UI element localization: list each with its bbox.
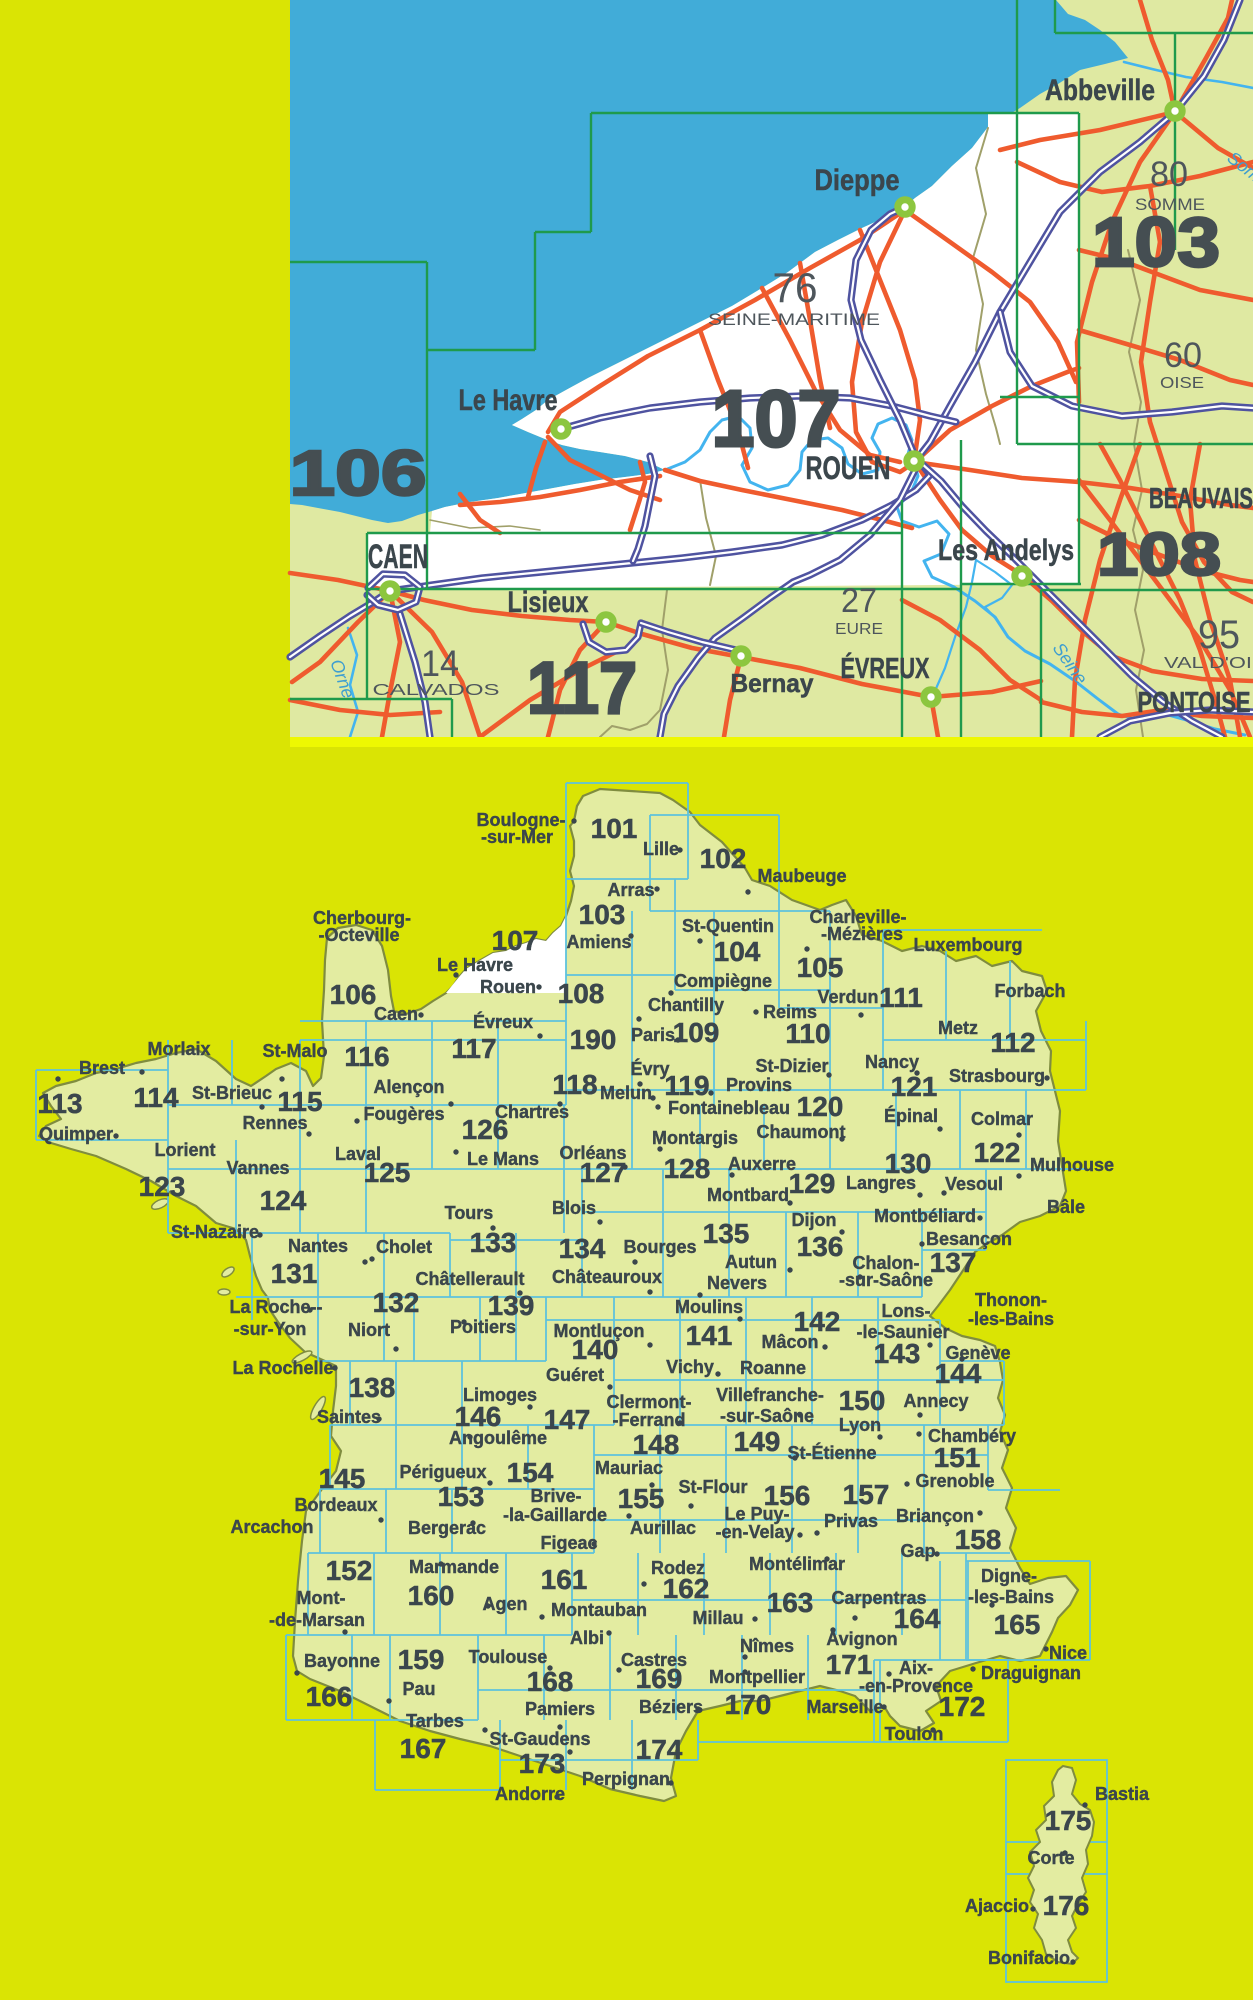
svg-text:Mauriac: Mauriac [595, 1458, 663, 1478]
svg-text:103: 103 [1092, 203, 1220, 281]
svg-text:St-Nazaire: St-Nazaire [171, 1222, 259, 1242]
svg-text:Castres: Castres [621, 1650, 687, 1670]
svg-text:Auxerre: Auxerre [728, 1154, 796, 1174]
svg-text:OISE: OISE [1160, 375, 1204, 392]
svg-text:CALVADOS: CALVADOS [373, 682, 500, 699]
svg-text:Châtellerault: Châtellerault [415, 1269, 524, 1289]
svg-text:174: 174 [636, 1734, 683, 1765]
svg-text:Le Havre: Le Havre [459, 384, 558, 417]
svg-text:Genève: Genève [945, 1343, 1010, 1363]
svg-text:Montauban: Montauban [551, 1600, 647, 1620]
svg-text:Cholet: Cholet [376, 1237, 432, 1257]
svg-text:Nîmes: Nîmes [740, 1636, 794, 1656]
svg-text:Vesoul: Vesoul [945, 1174, 1003, 1194]
svg-text:190: 190 [570, 1024, 617, 1055]
svg-text:Pamiers: Pamiers [525, 1699, 595, 1719]
svg-text:Chantilly: Chantilly [648, 995, 724, 1015]
svg-text:Montbéliard: Montbéliard [874, 1206, 976, 1226]
svg-text:Moulins: Moulins [675, 1297, 743, 1317]
svg-text:102: 102 [700, 843, 747, 874]
svg-text:Colmar: Colmar [971, 1109, 1033, 1129]
svg-text:150: 150 [839, 1385, 886, 1416]
svg-text:116: 116 [344, 1041, 389, 1072]
svg-text:Orléans: Orléans [559, 1143, 626, 1163]
svg-text:131: 131 [271, 1258, 318, 1289]
svg-text:-Octeville: -Octeville [318, 925, 399, 945]
svg-text:106: 106 [330, 979, 377, 1010]
svg-text:134: 134 [559, 1233, 606, 1264]
svg-text:175: 175 [1045, 1805, 1092, 1836]
svg-text:Bonifacio: Bonifacio [988, 1948, 1070, 1968]
svg-text:Gap: Gap [900, 1541, 935, 1561]
svg-text:Brest: Brest [79, 1058, 125, 1078]
svg-text:Montluçon: Montluçon [554, 1321, 645, 1341]
svg-text:Andorre: Andorre [495, 1784, 565, 1804]
svg-text:Rennes: Rennes [242, 1113, 307, 1133]
svg-text:Privas: Privas [824, 1511, 878, 1531]
svg-text:Le Mans: Le Mans [467, 1149, 539, 1169]
svg-text:137: 137 [930, 1247, 977, 1278]
svg-text:Verdun: Verdun [817, 987, 878, 1007]
svg-text:St-Gaudens: St-Gaudens [489, 1729, 590, 1749]
svg-text:Les Andelys: Les Andelys [938, 534, 1074, 567]
svg-text:Poitiers: Poitiers [450, 1317, 516, 1337]
svg-text:Grenoble: Grenoble [915, 1471, 994, 1491]
svg-text:Abbeville: Abbeville [1045, 74, 1155, 107]
svg-text:CAEN: CAEN [368, 538, 428, 576]
svg-text:Vannes: Vannes [226, 1158, 289, 1178]
svg-text:170: 170 [725, 1689, 772, 1720]
svg-text:Draguignan: Draguignan [981, 1663, 1081, 1683]
svg-text:Morlaix: Morlaix [147, 1039, 210, 1059]
svg-text:Fougères: Fougères [363, 1104, 444, 1124]
svg-text:Bâle: Bâle [1047, 1197, 1085, 1217]
svg-text:Montargis: Montargis [652, 1128, 738, 1148]
svg-text:Reims: Reims [763, 1002, 817, 1022]
svg-text:Niort: Niort [348, 1320, 390, 1340]
svg-text:Corte: Corte [1027, 1848, 1074, 1868]
svg-text:117: 117 [527, 648, 637, 729]
svg-text:166: 166 [306, 1681, 353, 1712]
svg-text:Rodez: Rodez [651, 1558, 705, 1578]
svg-text:Avignon: Avignon [826, 1629, 897, 1649]
svg-text:-de-Marsan: -de-Marsan [269, 1610, 365, 1630]
svg-text:-sur-Yon: -sur-Yon [234, 1319, 307, 1339]
svg-text:Aix-: Aix- [899, 1658, 933, 1678]
svg-text:Montélimar: Montélimar [749, 1554, 845, 1574]
svg-text:SEINE-MARITIME: SEINE-MARITIME [708, 310, 880, 329]
svg-text:Albi: Albi [570, 1628, 604, 1648]
svg-text:120: 120 [797, 1091, 844, 1122]
svg-text:Nantes: Nantes [288, 1236, 348, 1256]
svg-text:Strasbourg: Strasbourg [949, 1066, 1045, 1086]
svg-text:-la-Gaillarde: -la-Gaillarde [503, 1505, 607, 1525]
svg-text:148: 148 [633, 1429, 680, 1460]
svg-text:124: 124 [260, 1185, 307, 1216]
svg-text:Maubeuge: Maubeuge [757, 866, 846, 886]
svg-text:Metz: Metz [938, 1018, 978, 1038]
svg-text:La Rochelle: La Rochelle [232, 1358, 333, 1378]
svg-text:-sur-Mer: -sur-Mer [481, 827, 553, 847]
svg-text:Amiens: Amiens [566, 932, 631, 952]
svg-text:135: 135 [703, 1218, 750, 1249]
svg-text:Lyon: Lyon [839, 1415, 881, 1435]
svg-text:Nancy: Nancy [865, 1052, 919, 1072]
svg-text:Bernay: Bernay [731, 668, 815, 698]
svg-text:Lille: Lille [643, 839, 679, 859]
svg-text:154: 154 [507, 1457, 554, 1488]
svg-text:163: 163 [767, 1587, 814, 1618]
svg-text:PONTOISE: PONTOISE [1138, 687, 1251, 719]
svg-text:Ajaccio: Ajaccio [965, 1896, 1029, 1916]
svg-text:112: 112 [990, 1027, 1035, 1058]
svg-text:Pau: Pau [402, 1679, 435, 1699]
svg-text:Roanne: Roanne [740, 1358, 806, 1378]
svg-text:Paris: Paris [631, 1025, 675, 1045]
svg-text:158: 158 [955, 1524, 1002, 1555]
svg-text:ÉVREUX: ÉVREUX [841, 651, 930, 685]
svg-text:95: 95 [1198, 613, 1240, 657]
svg-text:Toulon: Toulon [885, 1724, 944, 1744]
svg-text:108: 108 [558, 978, 605, 1009]
svg-text:151: 151 [934, 1442, 981, 1473]
svg-text:St-Quentin: St-Quentin [682, 916, 774, 936]
svg-text:Langres: Langres [846, 1173, 916, 1193]
svg-text:Évry: Évry [630, 1058, 669, 1079]
svg-text:Angoulême: Angoulême [449, 1428, 547, 1448]
svg-text:Dieppe: Dieppe [815, 164, 900, 197]
svg-text:St-Brieuc: St-Brieuc [192, 1083, 272, 1103]
svg-text:117: 117 [451, 1033, 496, 1064]
svg-text:St-Dizier: St-Dizier [755, 1056, 828, 1076]
svg-text:Périgueux: Périgueux [399, 1462, 486, 1482]
svg-text:Bayonne: Bayonne [304, 1651, 380, 1671]
svg-text:Montbard: Montbard [707, 1185, 789, 1205]
svg-text:128: 128 [664, 1153, 711, 1184]
svg-text:121: 121 [891, 1071, 938, 1102]
svg-text:BEAUVAIS: BEAUVAIS [1149, 483, 1253, 515]
svg-text:Limoges: Limoges [463, 1385, 537, 1405]
svg-text:149: 149 [734, 1426, 781, 1457]
svg-text:-les-Bains: -les-Bains [968, 1587, 1054, 1607]
svg-text:Provins: Provins [726, 1075, 792, 1095]
svg-text:147: 147 [544, 1404, 591, 1435]
svg-text:Châteauroux: Châteauroux [552, 1267, 662, 1287]
svg-text:132: 132 [373, 1287, 420, 1318]
svg-text:109: 109 [673, 1017, 720, 1048]
svg-text:ROUEN: ROUEN [806, 450, 891, 486]
svg-text:Caen: Caen [374, 1004, 418, 1024]
svg-text:159: 159 [398, 1644, 445, 1675]
svg-text:Quimper: Quimper [39, 1124, 113, 1144]
svg-text:Bastia: Bastia [1095, 1784, 1150, 1804]
svg-text:-le-Saunier: -le-Saunier [856, 1322, 949, 1342]
svg-text:Clermont-: Clermont- [607, 1392, 692, 1412]
svg-text:Blois: Blois [552, 1198, 596, 1218]
svg-text:Brive-: Brive- [530, 1486, 581, 1506]
svg-text:111: 111 [879, 982, 923, 1013]
svg-text:157: 157 [843, 1479, 890, 1510]
svg-text:Annecy: Annecy [903, 1391, 968, 1411]
svg-text:Lons-: Lons- [882, 1301, 931, 1321]
svg-text:152: 152 [326, 1555, 373, 1586]
svg-text:Tarbes: Tarbes [406, 1711, 464, 1731]
svg-text:-en-Velay: -en-Velay [715, 1522, 794, 1542]
svg-text:123: 123 [139, 1171, 186, 1202]
svg-text:155: 155 [618, 1483, 665, 1514]
svg-text:103: 103 [579, 899, 626, 930]
svg-text:Millau: Millau [692, 1608, 743, 1628]
svg-text:Mulhouse: Mulhouse [1030, 1155, 1114, 1175]
svg-text:76: 76 [773, 264, 818, 311]
svg-text:136: 136 [797, 1231, 844, 1262]
svg-text:Luxembourg: Luxembourg [913, 935, 1022, 955]
svg-text:Vichy: Vichy [666, 1357, 714, 1377]
svg-text:Aurillac: Aurillac [630, 1518, 696, 1538]
svg-text:173: 173 [519, 1748, 566, 1779]
svg-text:176: 176 [1043, 1890, 1090, 1921]
svg-text:St-Flour: St-Flour [679, 1477, 748, 1497]
svg-text:145: 145 [319, 1463, 366, 1494]
svg-text:167: 167 [400, 1733, 447, 1764]
svg-text:Évreux: Évreux [473, 1011, 533, 1032]
svg-text:Digne-: Digne- [981, 1566, 1037, 1586]
svg-text:Fontainebleau: Fontainebleau [668, 1098, 790, 1118]
svg-text:Le Havre: Le Havre [437, 955, 513, 975]
svg-text:119: 119 [664, 1070, 709, 1101]
svg-text:St-Malo: St-Malo [263, 1041, 328, 1061]
svg-text:Autun: Autun [725, 1252, 777, 1272]
svg-text:-Ferrand: -Ferrand [612, 1410, 685, 1430]
svg-text:108: 108 [1097, 521, 1221, 588]
svg-text:101: 101 [591, 813, 638, 844]
svg-text:Dijon: Dijon [792, 1210, 837, 1230]
svg-text:Toulouse: Toulouse [469, 1647, 548, 1667]
svg-text:-les-Bains: -les-Bains [968, 1309, 1054, 1329]
svg-text:-en-Provence: -en-Provence [859, 1676, 973, 1696]
svg-text:114: 114 [133, 1082, 179, 1113]
svg-text:Montpellier: Montpellier [709, 1667, 805, 1687]
svg-text:Le Puy-: Le Puy- [724, 1504, 789, 1524]
svg-text:104: 104 [714, 936, 761, 967]
svg-text:Carpentras: Carpentras [831, 1588, 926, 1608]
svg-text:60: 60 [1164, 336, 1202, 375]
svg-text:Laval: Laval [335, 1144, 381, 1164]
svg-text:Nice: Nice [1049, 1643, 1087, 1663]
svg-text:Figeac: Figeac [540, 1533, 597, 1553]
svg-text:153: 153 [438, 1481, 485, 1512]
svg-text:80: 80 [1150, 155, 1188, 194]
svg-text:Arcachon: Arcachon [230, 1517, 313, 1537]
svg-text:Mont-: Mont- [297, 1588, 346, 1608]
svg-text:118: 118 [552, 1069, 597, 1100]
svg-text:Saintes: Saintes [317, 1407, 381, 1427]
svg-text:27: 27 [841, 582, 877, 620]
svg-text:Lisieux: Lisieux [508, 586, 589, 619]
svg-text:VAL D'OI: VAL D'OI [1164, 655, 1252, 672]
svg-text:141: 141 [686, 1320, 733, 1351]
svg-text:138: 138 [349, 1372, 396, 1403]
svg-text:Marseille: Marseille [806, 1697, 883, 1717]
svg-text:Nevers: Nevers [707, 1273, 767, 1293]
svg-text:Compiègne: Compiègne [674, 971, 772, 991]
svg-text:Chambéry: Chambéry [928, 1426, 1016, 1446]
svg-text:107: 107 [492, 925, 539, 956]
svg-text:Thonon-: Thonon- [975, 1290, 1047, 1310]
svg-text:Épinal: Épinal [884, 1105, 938, 1126]
svg-text:105: 105 [797, 952, 844, 983]
svg-text:Arras: Arras [607, 880, 654, 900]
svg-text:110: 110 [785, 1018, 830, 1049]
svg-text:Tours: Tours [445, 1203, 494, 1223]
svg-text:EURE: EURE [835, 621, 883, 638]
svg-text:122: 122 [974, 1137, 1021, 1168]
svg-text:Besançon: Besançon [926, 1229, 1012, 1249]
svg-text:160: 160 [408, 1580, 455, 1611]
svg-text:-sur-Saône: -sur-Saône [839, 1270, 933, 1290]
svg-text:113: 113 [37, 1088, 82, 1119]
svg-text:133: 133 [470, 1227, 517, 1258]
svg-text:Marmande: Marmande [409, 1557, 499, 1577]
svg-text:14: 14 [421, 643, 459, 684]
svg-text:Béziers: Béziers [639, 1697, 703, 1717]
svg-text:106: 106 [290, 437, 427, 509]
svg-text:Villefranche-: Villefranche- [716, 1385, 824, 1405]
svg-text:Melun: Melun [600, 1083, 652, 1103]
svg-text:Rouen: Rouen [480, 977, 536, 997]
svg-text:Briançon: Briançon [896, 1506, 974, 1526]
svg-text:Bordeaux: Bordeaux [294, 1495, 377, 1515]
svg-text:SOMME: SOMME [1135, 195, 1205, 214]
svg-text:Guéret: Guéret [546, 1365, 604, 1385]
svg-text:143: 143 [874, 1338, 921, 1369]
svg-text:Forbach: Forbach [994, 981, 1065, 1001]
svg-text:Bourges: Bourges [623, 1237, 696, 1257]
svg-text:St-Étienne: St-Étienne [787, 1442, 876, 1463]
svg-text:-Mézières: -Mézières [821, 924, 903, 944]
svg-text:Mâcon: Mâcon [761, 1332, 818, 1352]
svg-text:Chaumont: Chaumont [757, 1122, 846, 1142]
svg-text:161: 161 [541, 1564, 588, 1595]
svg-text:Lorient: Lorient [155, 1140, 216, 1160]
svg-text:La Roche--: La Roche-- [229, 1297, 322, 1317]
svg-text:165: 165 [994, 1609, 1041, 1640]
svg-text:Perpignan: Perpignan [582, 1769, 670, 1789]
svg-text:Alençon: Alençon [373, 1077, 444, 1097]
